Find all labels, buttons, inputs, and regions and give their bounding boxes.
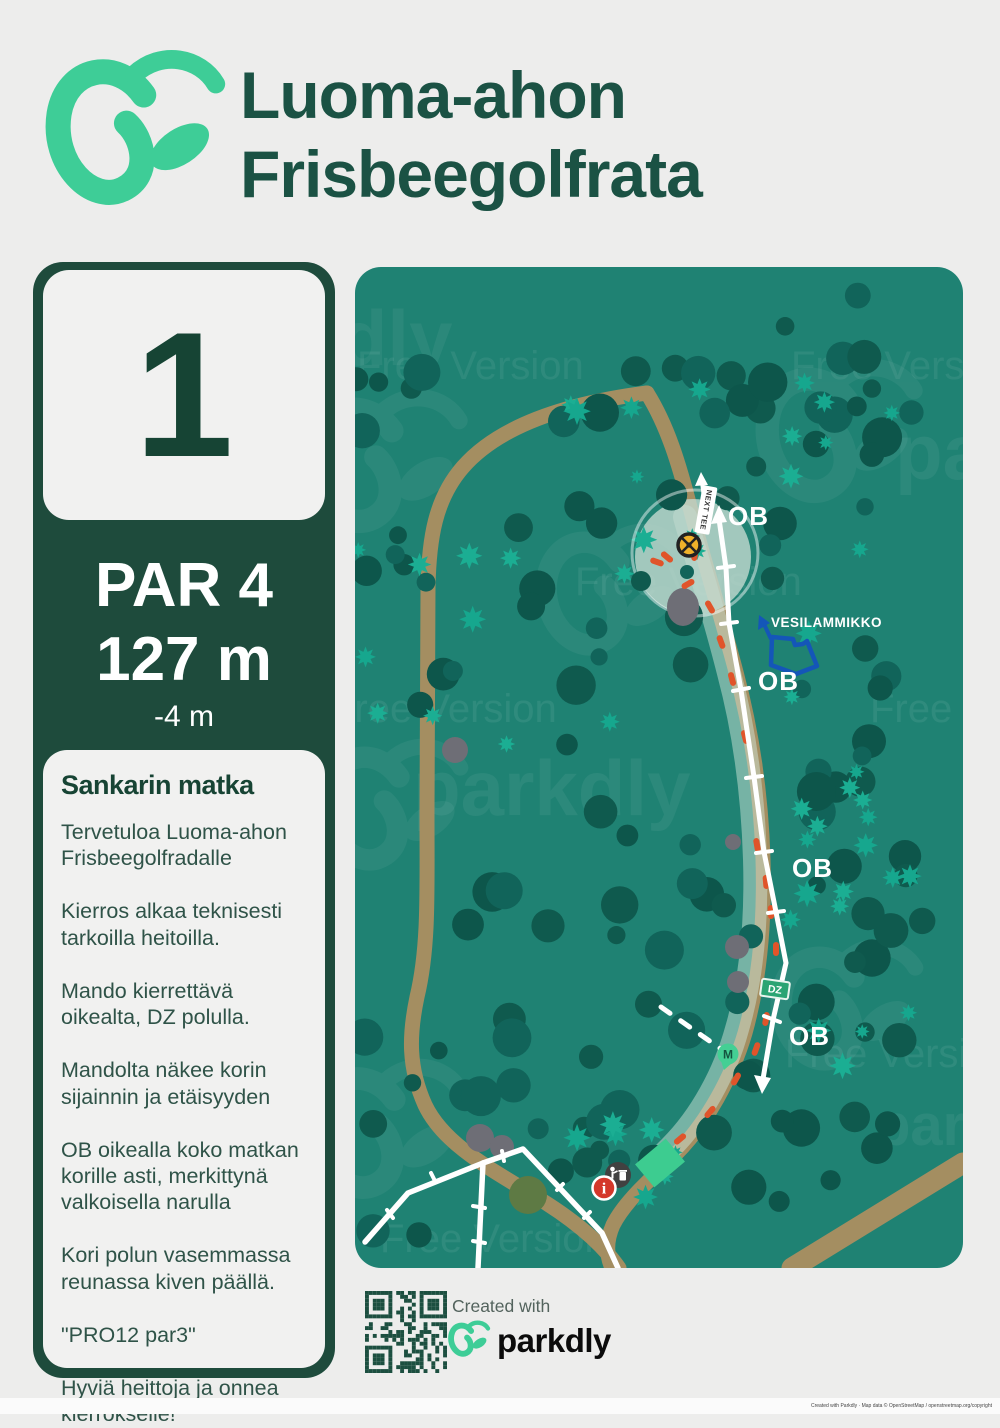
ob-label: OB bbox=[792, 853, 833, 883]
notes-paragraph: Kierros alkaa teknisesti tarkoilla heito… bbox=[61, 898, 307, 950]
hole-distance: 127 m bbox=[33, 624, 335, 695]
hole-panel: 1 PAR 4 127 m -4 m Sankarin matka Tervet… bbox=[33, 262, 335, 1378]
svg-text:DZ: DZ bbox=[767, 983, 783, 997]
par-label: PAR 4 bbox=[33, 550, 335, 621]
notes-title: Sankarin matka bbox=[61, 770, 307, 801]
page-title: Luoma-ahon Frisbeegolfrata bbox=[240, 56, 702, 214]
notes-paragraph: Kori polun vasemmassa reunassa kiven pää… bbox=[61, 1242, 307, 1294]
page-title-line2: Frisbeegolfrata bbox=[240, 135, 702, 214]
hole-number: 1 bbox=[135, 306, 234, 484]
notes-paragraph: OB oikealla koko matkan korille asti, me… bbox=[61, 1137, 307, 1216]
hole-notes: Sankarin matka Tervetuloa Luoma-ahon Fri… bbox=[43, 750, 325, 1368]
brand-name: parkdly bbox=[497, 1322, 611, 1360]
created-with-label: Created with bbox=[452, 1296, 550, 1317]
info-icon: i bbox=[593, 1177, 616, 1200]
ob-label: OB bbox=[789, 1021, 830, 1051]
hole-elevation: -4 m bbox=[33, 700, 335, 734]
notes-paragraph: "PRO12 par3" bbox=[61, 1322, 307, 1348]
ob-label: OB bbox=[728, 501, 769, 531]
svg-text:i: i bbox=[602, 1181, 607, 1198]
notes-paragraph: Mando kierrettävä oikealta, DZ polulla. bbox=[61, 978, 307, 1030]
ob-label: OB bbox=[758, 666, 799, 696]
small-tree-in-circle bbox=[631, 571, 651, 591]
pond-label: VESILAMMIKKO bbox=[771, 615, 882, 630]
course-map-canvas: Free Version Free Version Free Version F… bbox=[355, 267, 963, 1268]
small-tree-in-circle bbox=[680, 565, 694, 579]
basket-icon bbox=[678, 534, 700, 556]
notes-paragraph: Tervetuloa Luoma-ahon Frisbeegolfradalle bbox=[61, 819, 307, 871]
dropzone-marker: DZ bbox=[760, 979, 790, 1000]
course-map: Free Version Free Version Free Version F… bbox=[355, 267, 963, 1268]
qr-code bbox=[365, 1291, 447, 1373]
map-copyright: Created with Parkdly · Map data © OpenSt… bbox=[0, 1398, 1000, 1414]
svg-text:M: M bbox=[723, 1048, 733, 1062]
clearing bbox=[509, 1176, 547, 1214]
page-title-line1: Luoma-ahon bbox=[240, 56, 702, 135]
svg-text:Free Version: Free Version bbox=[355, 687, 557, 731]
hole-number-box: 1 bbox=[43, 270, 325, 520]
parkdly-logo-icon bbox=[45, 46, 233, 238]
parkdly-footer-logo-icon bbox=[448, 1320, 492, 1364]
notes-paragraph: Mandolta näkee korin sijainnin ja etäisy… bbox=[61, 1057, 307, 1109]
